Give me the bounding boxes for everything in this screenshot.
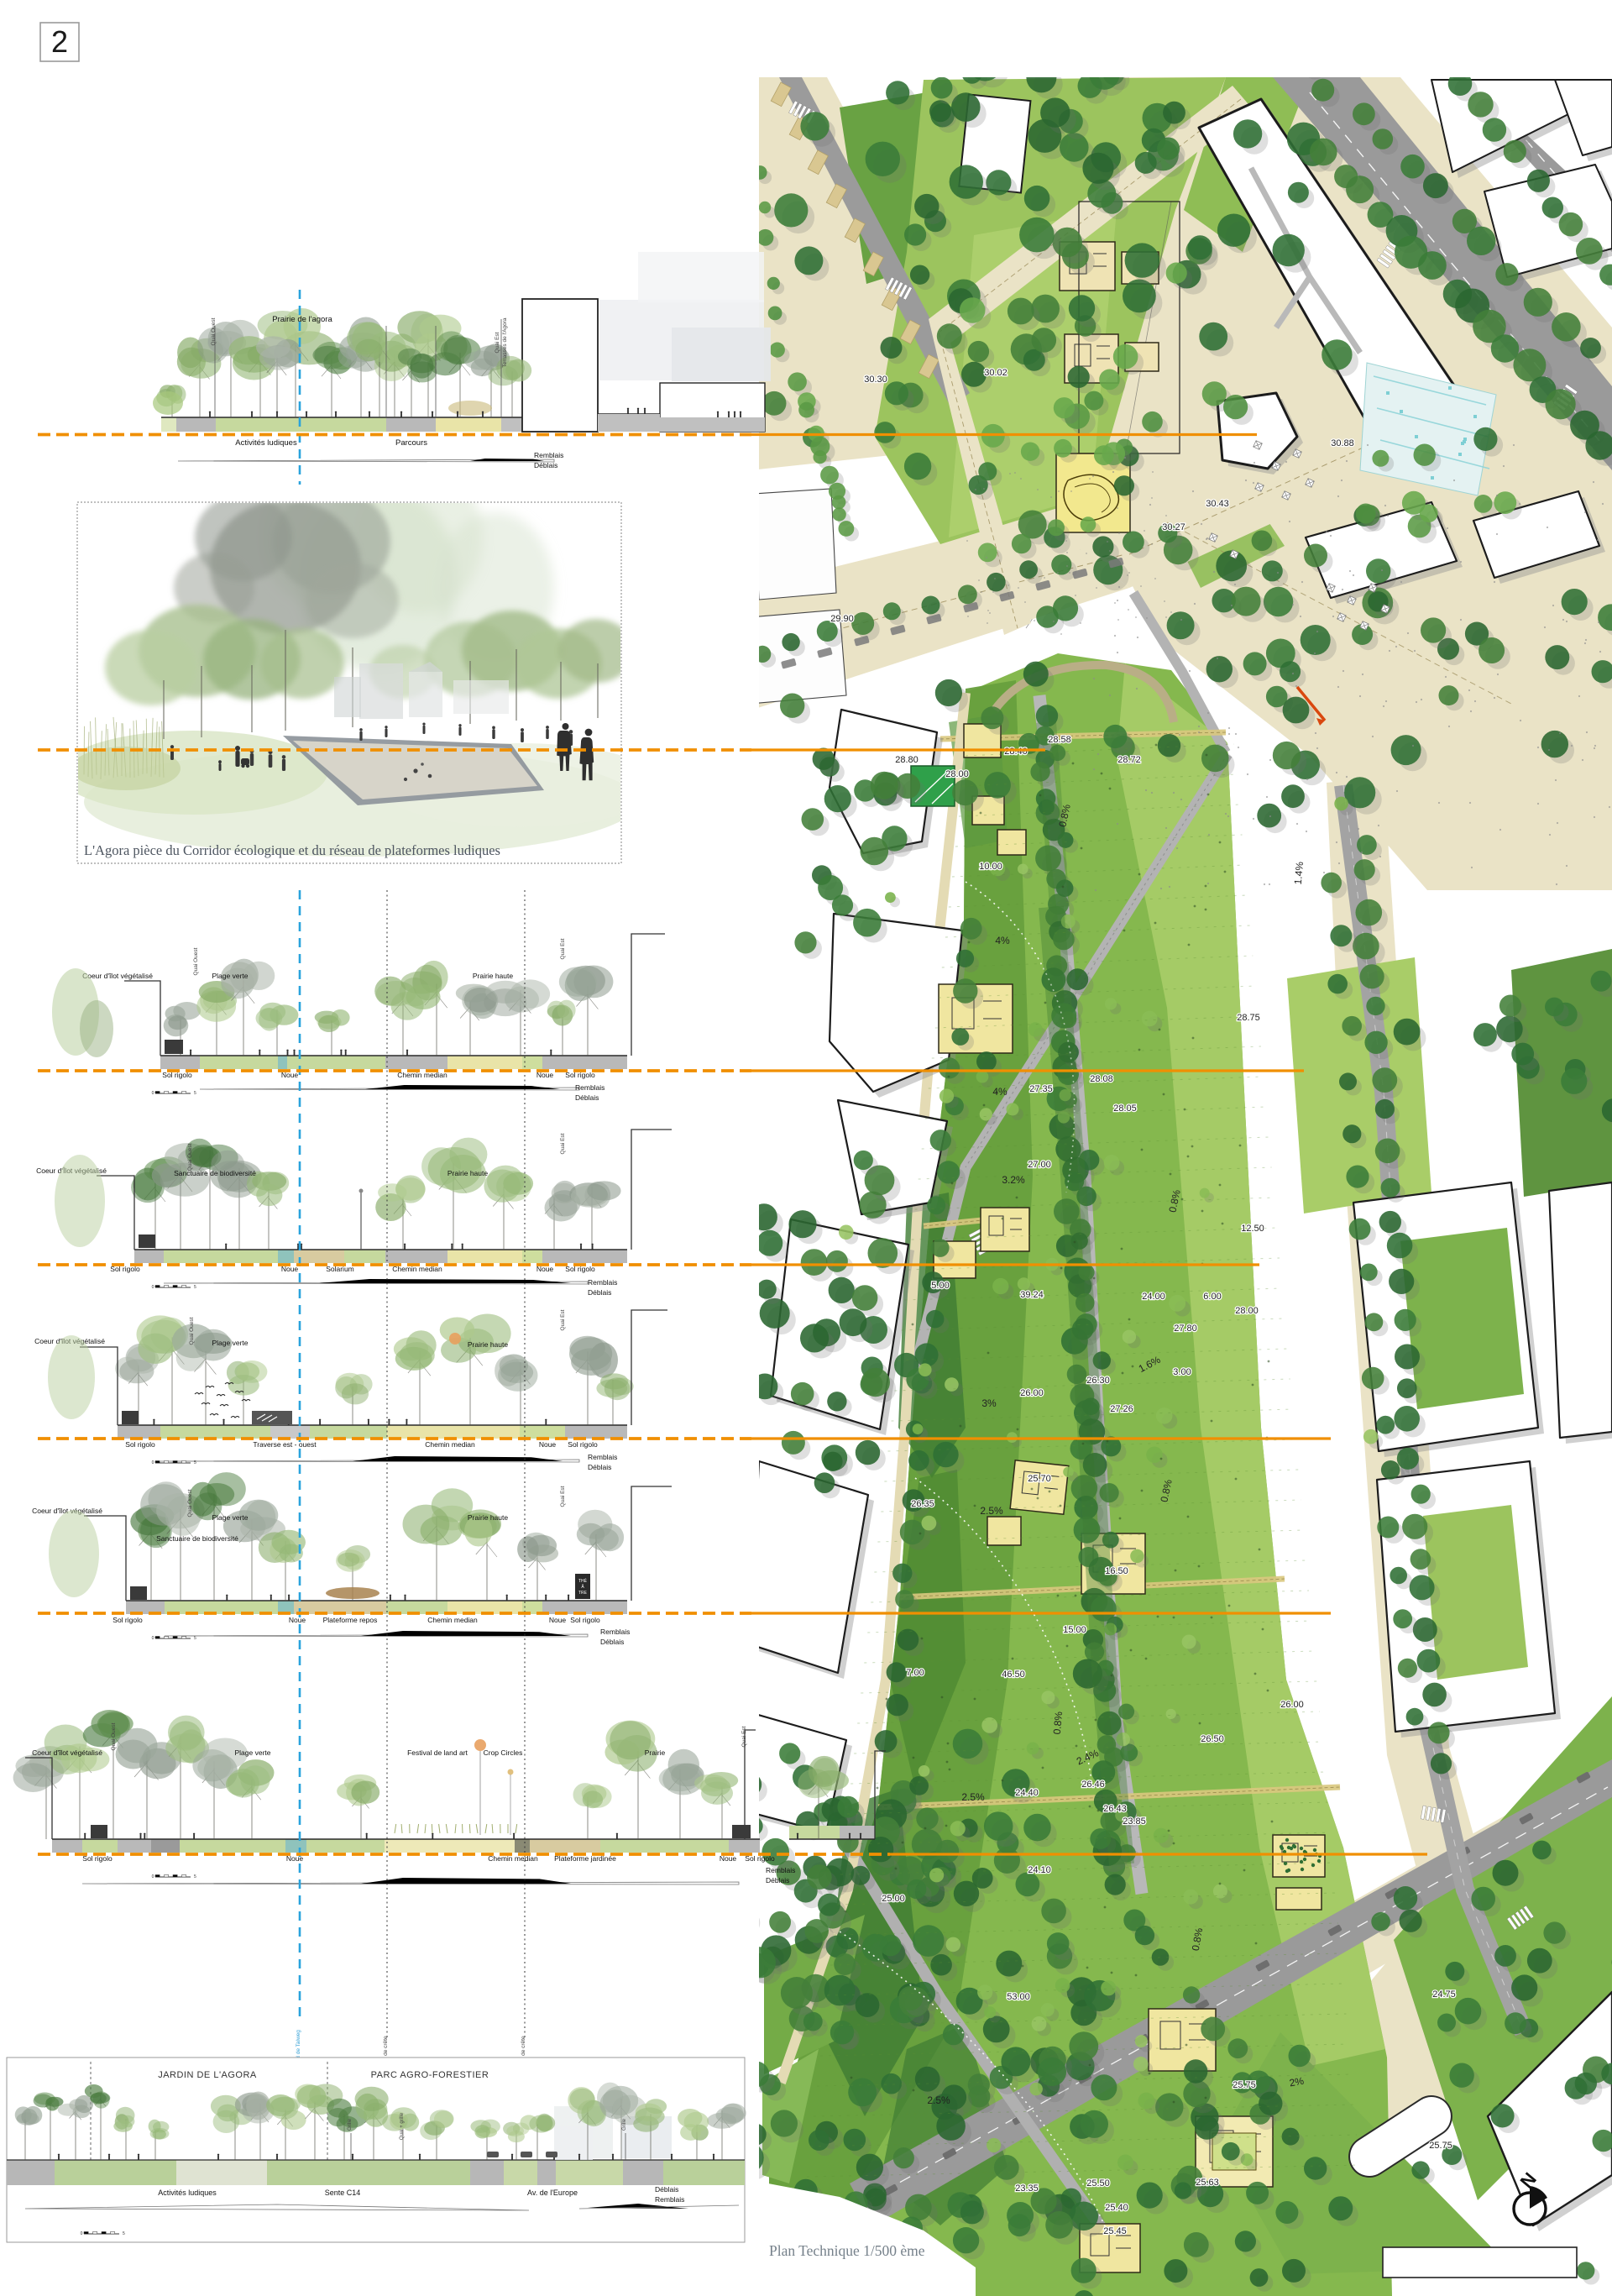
svg-text:6.00: 6.00 bbox=[1203, 1292, 1221, 1302]
svg-text:0: 0 bbox=[152, 1874, 154, 1879]
svg-text:Plateforme repos: Plateforme repos bbox=[323, 1616, 378, 1624]
svg-text:0: 0 bbox=[81, 2231, 83, 2236]
svg-text:28.75: 28.75 bbox=[1237, 1013, 1260, 1023]
svg-text:Activités ludiques: Activités ludiques bbox=[235, 438, 297, 448]
svg-text:Sanctuaire de biodiversité: Sanctuaire de biodiversité bbox=[174, 1169, 256, 1177]
svg-text:28.58: 28.58 bbox=[1048, 735, 1071, 745]
svg-text:5: 5 bbox=[194, 1285, 196, 1290]
svg-text:3.00: 3.00 bbox=[1173, 1367, 1191, 1377]
svg-text:Déblais: Déblais bbox=[600, 1638, 624, 1646]
svg-text:Noue: Noue bbox=[289, 1616, 306, 1624]
svg-text:5.00: 5.00 bbox=[931, 1281, 949, 1291]
svg-text:28.00: 28.00 bbox=[945, 769, 969, 779]
svg-text:Quai Ouest: Quai Ouest bbox=[187, 1143, 193, 1171]
svg-text:24.00: 24.00 bbox=[1142, 1292, 1165, 1302]
svg-text:Quai Est: Quai Est bbox=[495, 332, 500, 353]
svg-text:Quai Ouest: Quai Ouest bbox=[193, 947, 199, 975]
svg-text:28.80: 28.80 bbox=[895, 755, 919, 765]
svg-text:26.00: 26.00 bbox=[1280, 1700, 1304, 1710]
svg-text:Prairie haute: Prairie haute bbox=[447, 1169, 488, 1177]
svg-text:Quai Ouest: Quai Ouest bbox=[187, 1489, 193, 1517]
svg-text:Quai Est: Quai Est bbox=[560, 1486, 566, 1507]
svg-text:28.08: 28.08 bbox=[1090, 1074, 1113, 1084]
svg-text:Prairie: Prairie bbox=[645, 1748, 666, 1757]
svg-text:26.43: 26.43 bbox=[1103, 1804, 1127, 1814]
svg-text:2: 2 bbox=[51, 24, 68, 59]
svg-text:30.02: 30.02 bbox=[984, 368, 1007, 378]
svg-text:28.40: 28.40 bbox=[1004, 747, 1028, 757]
svg-text:Remblais: Remblais bbox=[655, 2195, 684, 2204]
svg-text:Plage verte: Plage verte bbox=[212, 1339, 249, 1347]
svg-text:Plage verte: Plage verte bbox=[212, 972, 249, 980]
svg-text:Festival de land art: Festival de land art bbox=[407, 1748, 468, 1757]
svg-text:Av. de l'Europe: Av. de l'Europe bbox=[527, 2189, 578, 2197]
svg-text:39.24: 39.24 bbox=[1020, 1290, 1044, 1300]
svg-text:Quai Est: Quai Est bbox=[741, 1726, 747, 1747]
svg-text:25.75: 25.75 bbox=[1233, 2080, 1256, 2090]
svg-text:Chemin median: Chemin median bbox=[488, 1854, 538, 1863]
svg-text:Plage verte: Plage verte bbox=[235, 1748, 271, 1757]
svg-text:Prairie haute: Prairie haute bbox=[473, 972, 513, 980]
svg-text:Déblais: Déblais bbox=[588, 1288, 611, 1297]
svg-text:Traverse est - ouest: Traverse est - ouest bbox=[253, 1440, 317, 1449]
svg-text:7.00: 7.00 bbox=[906, 1668, 924, 1678]
svg-text:TRE: TRE bbox=[578, 1591, 588, 1596]
svg-text:25.70: 25.70 bbox=[1028, 1474, 1051, 1484]
svg-text:PARC AGRO-FORESTIER: PARC AGRO-FORESTIER bbox=[371, 2070, 489, 2080]
svg-text:26.50: 26.50 bbox=[1201, 1734, 1224, 1744]
svg-text:Sol rigolo: Sol rigolo bbox=[125, 1440, 155, 1449]
svg-text:25.00: 25.00 bbox=[882, 1894, 905, 1904]
svg-text:5: 5 bbox=[194, 1091, 196, 1096]
svg-text:27.35: 27.35 bbox=[1029, 1084, 1053, 1094]
svg-text:Sanctuaire de biodiversité: Sanctuaire de biodiversité bbox=[156, 1534, 238, 1543]
svg-text:26.35: 26.35 bbox=[911, 1499, 934, 1509]
svg-text:4%: 4% bbox=[992, 1086, 1007, 1098]
svg-text:30.88: 30.88 bbox=[1331, 438, 1354, 448]
svg-text:Quai + grille: Quai + grille bbox=[400, 2112, 405, 2140]
svg-text:28.00: 28.00 bbox=[1235, 1306, 1259, 1316]
svg-text:0: 0 bbox=[152, 1636, 154, 1641]
svg-text:Remblais: Remblais bbox=[588, 1278, 617, 1287]
svg-text:27.80: 27.80 bbox=[1174, 1324, 1197, 1334]
svg-text:Remblais: Remblais bbox=[575, 1083, 604, 1092]
svg-text:Sol rigolo: Sol rigolo bbox=[568, 1440, 598, 1449]
svg-text:5: 5 bbox=[194, 1874, 196, 1879]
svg-text:25.50: 25.50 bbox=[1086, 2178, 1110, 2189]
svg-text:0: 0 bbox=[152, 1460, 154, 1465]
svg-text:5: 5 bbox=[123, 2231, 125, 2236]
svg-text:Quai Ouest: Quai Ouest bbox=[211, 317, 217, 345]
svg-text:Sol rigolo: Sol rigolo bbox=[113, 1616, 143, 1624]
svg-text:Parcours: Parcours bbox=[395, 438, 427, 448]
svg-text:16.50: 16.50 bbox=[1105, 1566, 1128, 1576]
svg-text:10.00: 10.00 bbox=[979, 862, 1002, 872]
svg-text:53.00: 53.00 bbox=[1007, 1992, 1030, 2002]
svg-text:12.50: 12.50 bbox=[1241, 1224, 1264, 1234]
svg-text:25.75: 25.75 bbox=[1429, 2141, 1452, 2151]
svg-text:Coeur d'îlot végétalisé: Coeur d'îlot végétalisé bbox=[82, 972, 153, 980]
svg-text:2.5%: 2.5% bbox=[980, 1505, 1003, 1517]
svg-text:Quai Ouest: Quai Ouest bbox=[111, 1722, 117, 1750]
svg-text:Remblais: Remblais bbox=[766, 1866, 795, 1874]
svg-text:Terrasses de l'Agora: Terrasses de l'Agora bbox=[502, 317, 508, 367]
svg-text:27.00: 27.00 bbox=[1028, 1160, 1051, 1170]
svg-text:Chemin median: Chemin median bbox=[397, 1071, 447, 1079]
svg-text:24.40: 24.40 bbox=[1015, 1788, 1039, 1798]
svg-text:26.00: 26.00 bbox=[1020, 1388, 1044, 1398]
svg-text:0: 0 bbox=[152, 1091, 154, 1096]
svg-text:23.35: 23.35 bbox=[1015, 2183, 1039, 2194]
svg-text:Noue: Noue bbox=[549, 1616, 567, 1624]
svg-text:23.85: 23.85 bbox=[1123, 1816, 1146, 1827]
svg-text:Sente C14: Sente C14 bbox=[325, 2189, 361, 2197]
svg-text:Remblais: Remblais bbox=[534, 451, 563, 459]
svg-text:4%: 4% bbox=[995, 935, 1010, 946]
svg-text:Quai Ouest: Quai Ouest bbox=[189, 1317, 195, 1345]
svg-text:25.45: 25.45 bbox=[1103, 2226, 1127, 2236]
svg-text:0: 0 bbox=[152, 1285, 154, 1290]
svg-text:28.72: 28.72 bbox=[1117, 755, 1141, 765]
svg-text:24.10: 24.10 bbox=[1028, 1865, 1051, 1875]
svg-text:Grille: Grille bbox=[622, 2118, 627, 2131]
svg-text:2.5%: 2.5% bbox=[927, 2094, 950, 2106]
svg-text:27.26: 27.26 bbox=[1110, 1404, 1133, 1414]
svg-text:5: 5 bbox=[194, 1460, 196, 1465]
svg-text:30.27: 30.27 bbox=[1162, 522, 1185, 532]
svg-text:30.30: 30.30 bbox=[864, 375, 887, 385]
svg-text:Activités ludiques: Activités ludiques bbox=[158, 2189, 217, 2197]
svg-text:1.4%: 1.4% bbox=[1292, 861, 1306, 885]
svg-text:Plan Technique 1/500 ème: Plan Technique 1/500 ème bbox=[769, 2242, 925, 2259]
svg-text:Coeur d'îlot végétalisé: Coeur d'îlot végétalisé bbox=[32, 1748, 102, 1757]
svg-text:25.63: 25.63 bbox=[1196, 2178, 1219, 2188]
svg-text:Déblais: Déblais bbox=[575, 1093, 599, 1102]
svg-text:Grille: Grille bbox=[348, 2118, 353, 2131]
svg-text:Quai Est: Quai Est bbox=[560, 938, 566, 959]
svg-text:26.30: 26.30 bbox=[1086, 1376, 1110, 1386]
svg-text:Plage verte: Plage verte bbox=[212, 1513, 249, 1522]
svg-text:3.2%: 3.2% bbox=[1002, 1174, 1025, 1186]
svg-text:Prairie de l'agora: Prairie de l'agora bbox=[272, 315, 332, 324]
svg-text:15.00: 15.00 bbox=[1063, 1625, 1086, 1635]
svg-text:25.40: 25.40 bbox=[1105, 2203, 1128, 2213]
svg-text:28.05: 28.05 bbox=[1113, 1103, 1137, 1114]
svg-text:Prairie haute: Prairie haute bbox=[468, 1340, 508, 1349]
svg-text:Quai Est: Quai Est bbox=[560, 1133, 566, 1154]
svg-text:5: 5 bbox=[194, 1636, 196, 1641]
svg-text:Déblais: Déblais bbox=[655, 2185, 678, 2194]
svg-text:JARDIN DE L'AGORA: JARDIN DE L'AGORA bbox=[158, 2070, 257, 2080]
svg-text:24.75: 24.75 bbox=[1432, 1989, 1456, 2000]
svg-text:Remblais: Remblais bbox=[600, 1628, 630, 1636]
svg-text:Chemin median: Chemin median bbox=[425, 1440, 475, 1449]
svg-text:THÉ: THÉ bbox=[578, 1578, 588, 1584]
svg-text:29.90: 29.90 bbox=[830, 614, 854, 624]
svg-text:Quai Est: Quai Est bbox=[560, 1309, 566, 1330]
svg-text:30.43: 30.43 bbox=[1206, 499, 1229, 509]
svg-text:26.46: 26.46 bbox=[1081, 1780, 1105, 1790]
svg-text:46.50: 46.50 bbox=[1002, 1670, 1025, 1680]
svg-text:0.8%: 0.8% bbox=[1051, 1711, 1065, 1735]
svg-text:Remblais: Remblais bbox=[588, 1453, 617, 1461]
svg-text:L'Agora pièce du Corridor écol: L'Agora pièce du Corridor écologique et … bbox=[84, 842, 500, 858]
svg-text:2.5%: 2.5% bbox=[961, 1791, 985, 1803]
svg-text:Crop Circles: Crop Circles bbox=[484, 1748, 523, 1757]
svg-text:Déblais: Déblais bbox=[534, 461, 557, 469]
svg-text:Déblais: Déblais bbox=[588, 1463, 611, 1471]
svg-text:Sol rigolo: Sol rigolo bbox=[570, 1616, 600, 1624]
svg-text:3%: 3% bbox=[981, 1397, 997, 1409]
svg-text:Déblais: Déblais bbox=[766, 1876, 789, 1885]
svg-text:Chemin median: Chemin median bbox=[427, 1616, 478, 1624]
svg-text:Noue: Noue bbox=[539, 1440, 557, 1449]
svg-text:Prairie haute: Prairie haute bbox=[468, 1513, 508, 1522]
